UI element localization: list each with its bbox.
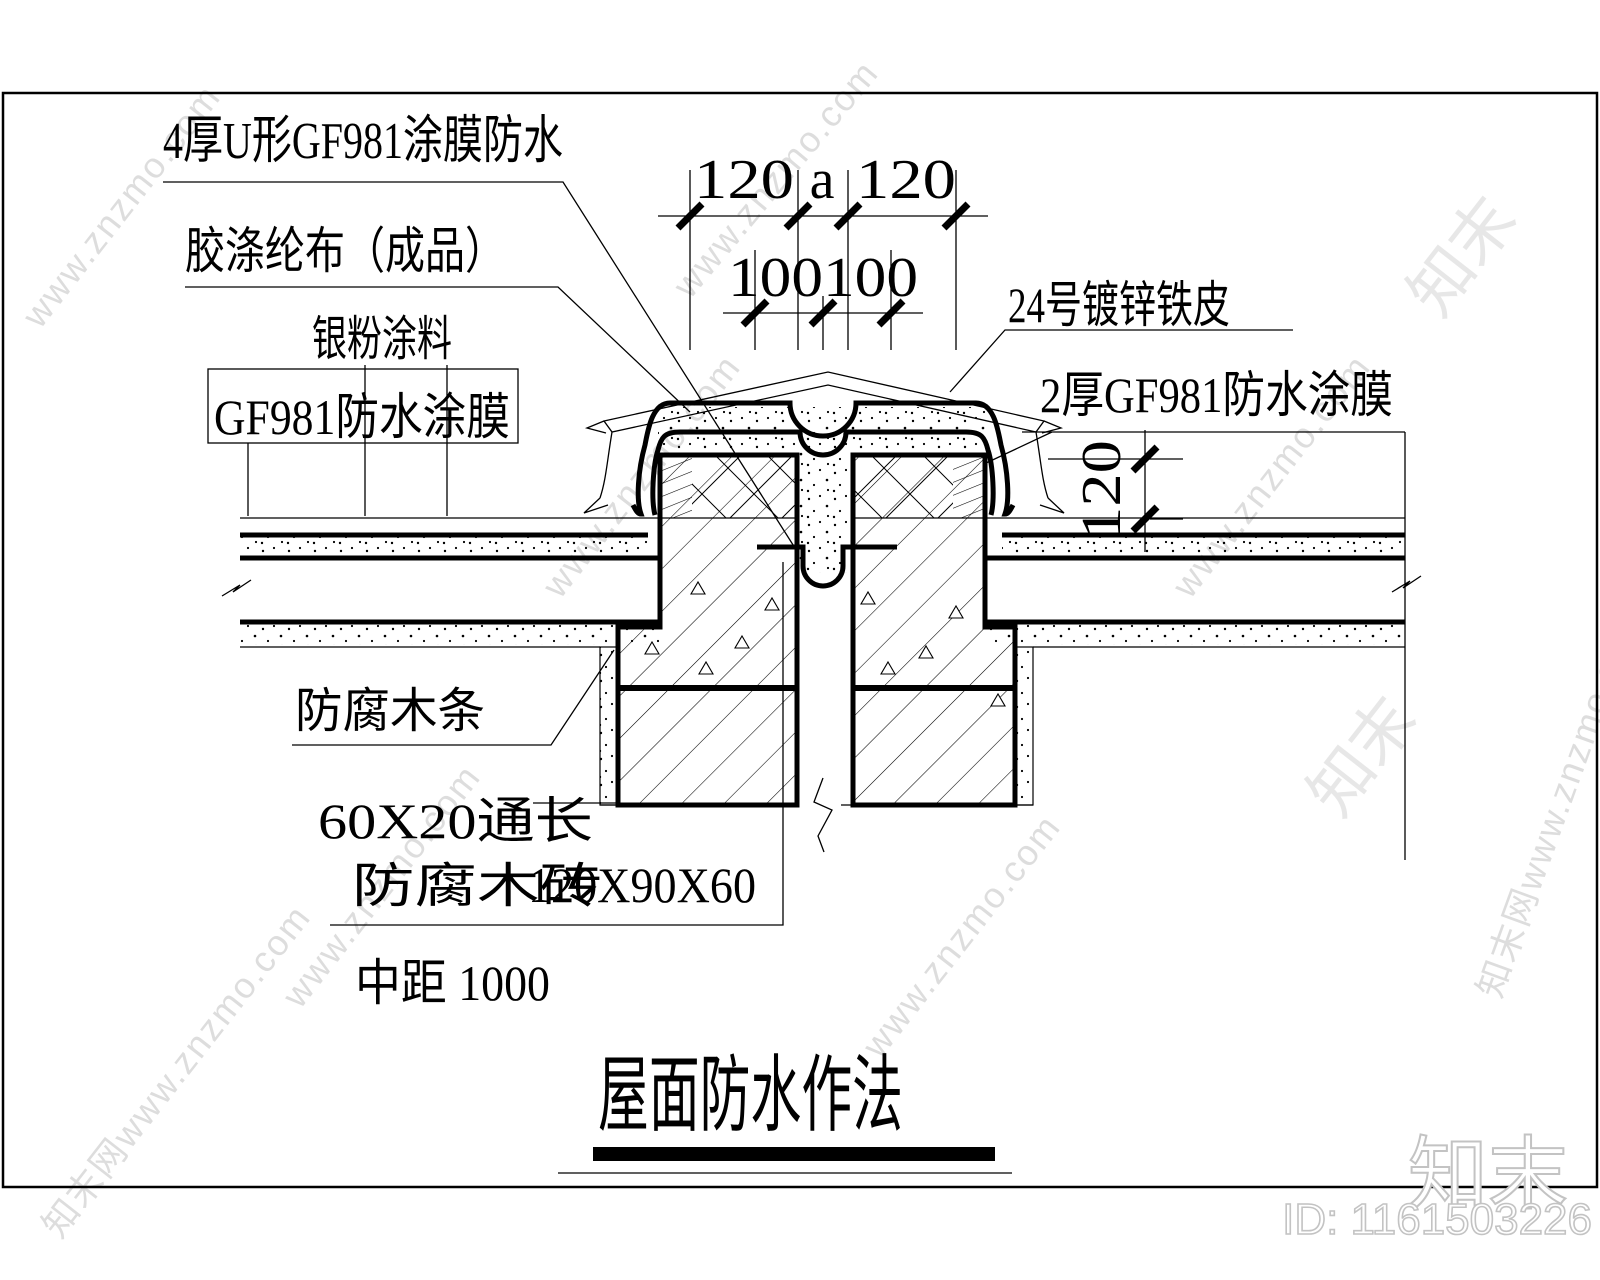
- label-gf981-membrane: GF981防水涂膜: [214, 389, 510, 445]
- left-block-crosshatch: [692, 457, 797, 518]
- dim-100-100: 100100: [728, 247, 918, 309]
- dim-120-right: 120: [856, 149, 956, 211]
- watermark-brand-big: 知末: [1394, 183, 1530, 328]
- break-mark-right: [1392, 576, 1421, 592]
- dim-120-vertical: 120: [1071, 440, 1133, 540]
- watermark-brand-text: 知末网www.znzmo.com: [1469, 603, 1600, 1002]
- title-underline-bar: [593, 1147, 995, 1161]
- label-block-size: 120X90X60: [528, 857, 756, 913]
- dim-a: a: [810, 149, 835, 211]
- screed-band-right: [1002, 537, 1405, 556]
- watermark-brand-text: 知末网www.znzmo.com: [34, 897, 319, 1245]
- break-mark-left: [222, 580, 251, 596]
- label-silver-paint: 银粉涂料: [312, 313, 452, 366]
- label-wood-strip: 防腐木条: [295, 685, 485, 738]
- title-block: 屋面防水作法: [558, 1050, 1012, 1173]
- drawing-canvas: www.znzmo.com www.znzmo.com www.znzmo.co…: [0, 0, 1600, 1280]
- leader-membrane-2mm: [984, 432, 1405, 464]
- left-batten-strip: [660, 457, 692, 518]
- joint-sealant-fill: [799, 455, 847, 573]
- screed-band-left: [240, 537, 648, 556]
- label-wood-batten: 60X20通长: [318, 793, 593, 849]
- label-top-membrane: 4厚U形GF981涂膜防水: [163, 113, 563, 170]
- cad-drawing-page: www.znzmo.com www.znzmo.com www.znzmo.co…: [0, 0, 1600, 1280]
- label-spacing: 中距 1000: [355, 955, 550, 1011]
- break-mark-center: [814, 778, 832, 852]
- right-batten-strip: [953, 457, 985, 518]
- plaster-band-left: [240, 624, 660, 645]
- watermark-text: www.znzmo.com: [853, 806, 1068, 1065]
- watermark-id: ID: 1161503226: [1282, 1195, 1592, 1244]
- left-plaster-band: [600, 647, 618, 805]
- right-plaster-band: [1015, 647, 1033, 805]
- plaster-band-right: [985, 624, 1405, 645]
- drawing-title: 屋面防水作法: [598, 1050, 903, 1143]
- dim-120-left: 120: [694, 149, 794, 211]
- label-membrane-2mm: 2厚GF981防水涂膜: [1040, 367, 1393, 423]
- label-cloth: 胶涤纶布（成品）: [185, 223, 505, 279]
- watermark-brand-big: 知末: [1294, 683, 1430, 828]
- label-steel-sheet: 24号镀锌铁皮: [1008, 277, 1230, 333]
- right-block-crosshatch: [853, 457, 953, 518]
